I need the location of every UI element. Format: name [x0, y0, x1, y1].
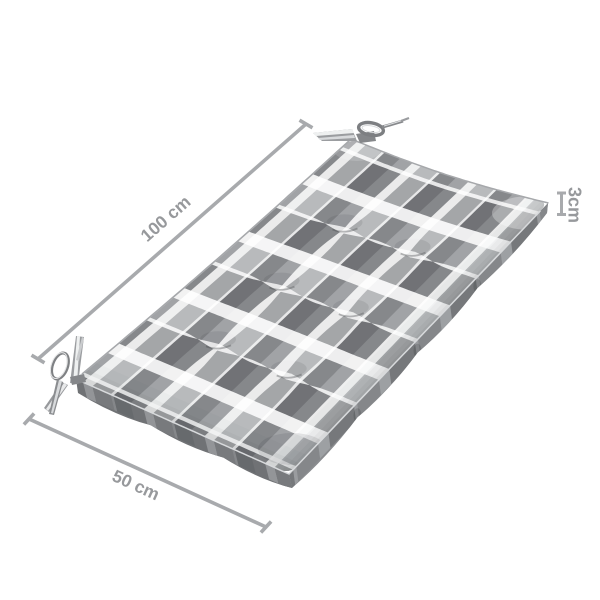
svg-text:3cm: 3cm [565, 187, 585, 223]
